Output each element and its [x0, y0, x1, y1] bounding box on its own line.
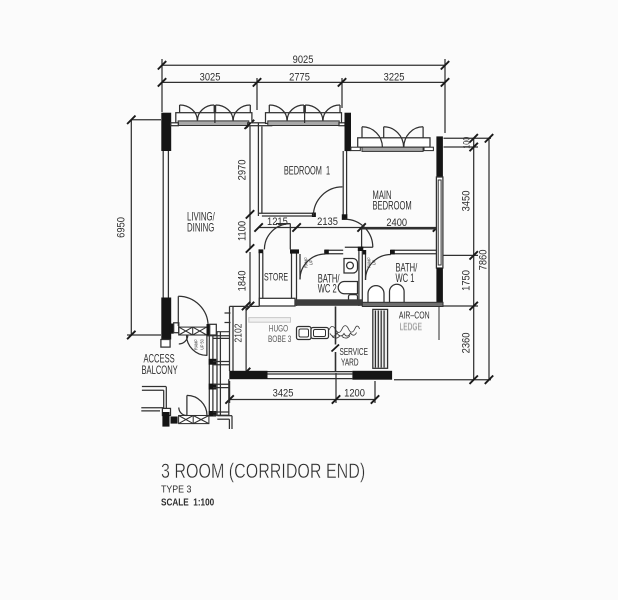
svg-text:2135: 2135	[317, 216, 338, 228]
svg-text:UP: UP	[371, 260, 377, 265]
svg-text:AIR–CON: AIR–CON	[399, 309, 430, 321]
svg-text:BEDROOM: BEDROOM	[373, 200, 412, 213]
svg-text:HUGO: HUGO	[269, 323, 288, 334]
svg-text:BALCONY: BALCONY	[142, 365, 179, 378]
svg-text:7860: 7860	[478, 249, 490, 270]
svg-text:RAMP: RAMP	[193, 339, 199, 350]
svg-text:LEDGE: LEDGE	[400, 320, 423, 332]
svg-text:1200: 1200	[344, 388, 365, 400]
svg-text:2970: 2970	[237, 159, 249, 180]
svg-text:3450: 3450	[461, 190, 473, 211]
svg-text:2360: 2360	[461, 332, 473, 353]
svg-text:6950: 6950	[116, 217, 128, 238]
svg-text:1840: 1840	[237, 270, 249, 291]
svg-text:1100: 1100	[237, 221, 249, 241]
svg-text:WC 2: WC 2	[318, 283, 337, 296]
svg-text:WC 1: WC 1	[396, 273, 415, 286]
svg-text:100: 100	[462, 136, 472, 148]
svg-text:BOBE 3: BOBE 3	[268, 334, 292, 345]
svg-text:UP: UP	[308, 260, 314, 265]
svg-text:TYPE 3: TYPE 3	[161, 484, 191, 496]
svg-text:2400: 2400	[386, 217, 407, 229]
svg-text:YARD: YARD	[341, 356, 359, 368]
svg-text:UP 50: UP 50	[199, 339, 205, 350]
svg-text:BEDROOM 1: BEDROOM 1	[284, 165, 330, 178]
svg-text:STORE: STORE	[264, 271, 288, 283]
svg-text:9025: 9025	[293, 54, 314, 66]
svg-text:2102: 2102	[233, 324, 244, 343]
svg-text:SCALE 1:100: SCALE 1:100	[161, 497, 214, 508]
svg-text:2775: 2775	[289, 72, 310, 84]
svg-text:3425: 3425	[273, 388, 294, 400]
svg-text:1750: 1750	[461, 270, 473, 291]
svg-text:DINING: DINING	[187, 222, 214, 235]
svg-text:3025: 3025	[200, 72, 221, 84]
svg-text:3 ROOM (CORRIDOR END): 3 ROOM (CORRIDOR END)	[161, 460, 365, 484]
svg-text:3225: 3225	[384, 72, 405, 84]
